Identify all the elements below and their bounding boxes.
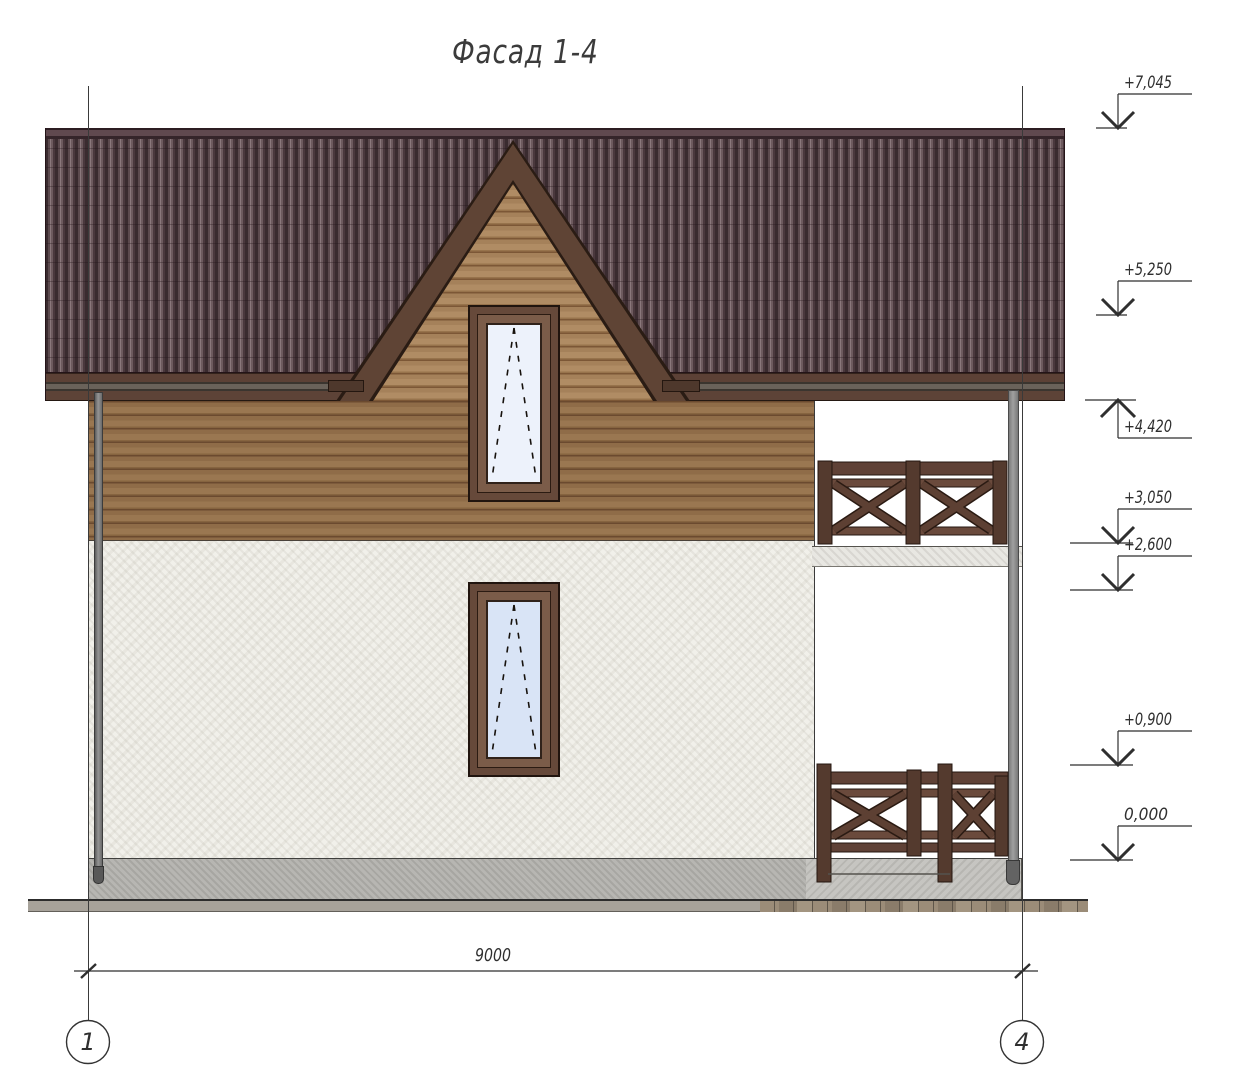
elevation-label: +2,600 [1124,535,1172,555]
balcony-railing [818,461,1007,544]
balcony-x-brace-right [922,484,991,530]
axis-bubble-4: 4 [1001,1021,1044,1064]
elevation-label: +3,050 [1124,488,1172,508]
elevation-label: 0,000 [1124,805,1168,825]
railing-post [907,770,921,856]
railing-post [993,461,1007,544]
elevation-mark-0900: +0,900 [1070,710,1192,765]
elevation-label: +0,900 [1124,710,1172,730]
terrace-railing [817,764,1008,882]
elevation-label: +5,250 [1124,260,1172,280]
railing-post [995,776,1008,856]
axis-lines [89,86,1023,1020]
dimension-line: 9000 [74,945,1038,978]
elevation-label: +7,045 [1124,73,1172,93]
axis-label: 1 [80,1028,95,1056]
elevation-label: +4,420 [1124,417,1172,437]
railing-post [817,764,831,882]
dimension-label: 9000 [475,945,511,966]
terrace-x-brace-right [954,794,993,836]
elevation-mark-5250: +5,250 [1096,260,1192,315]
axis-label: 4 [1014,1028,1029,1056]
elevation-marks: +7,045 +5,250 +4,420 [1070,73,1192,860]
facade-drawing: Фасад 1-4 [0,0,1240,1080]
railing-post [938,764,952,882]
axis-bubble-1: 1 [67,1021,110,1064]
elevation-mark-0000: 0,000 [1070,805,1192,860]
terrace-x-brace-left [833,794,905,836]
elevation-mark-7045: +7,045 [1096,73,1192,128]
elevation-mark-4420: +4,420 [1085,400,1192,438]
annotation-overlay: 9000 1 4 +7,045 [0,0,1240,1080]
balcony-x-brace-left [834,484,904,530]
railing-post [818,461,832,544]
railing-post [906,461,920,544]
